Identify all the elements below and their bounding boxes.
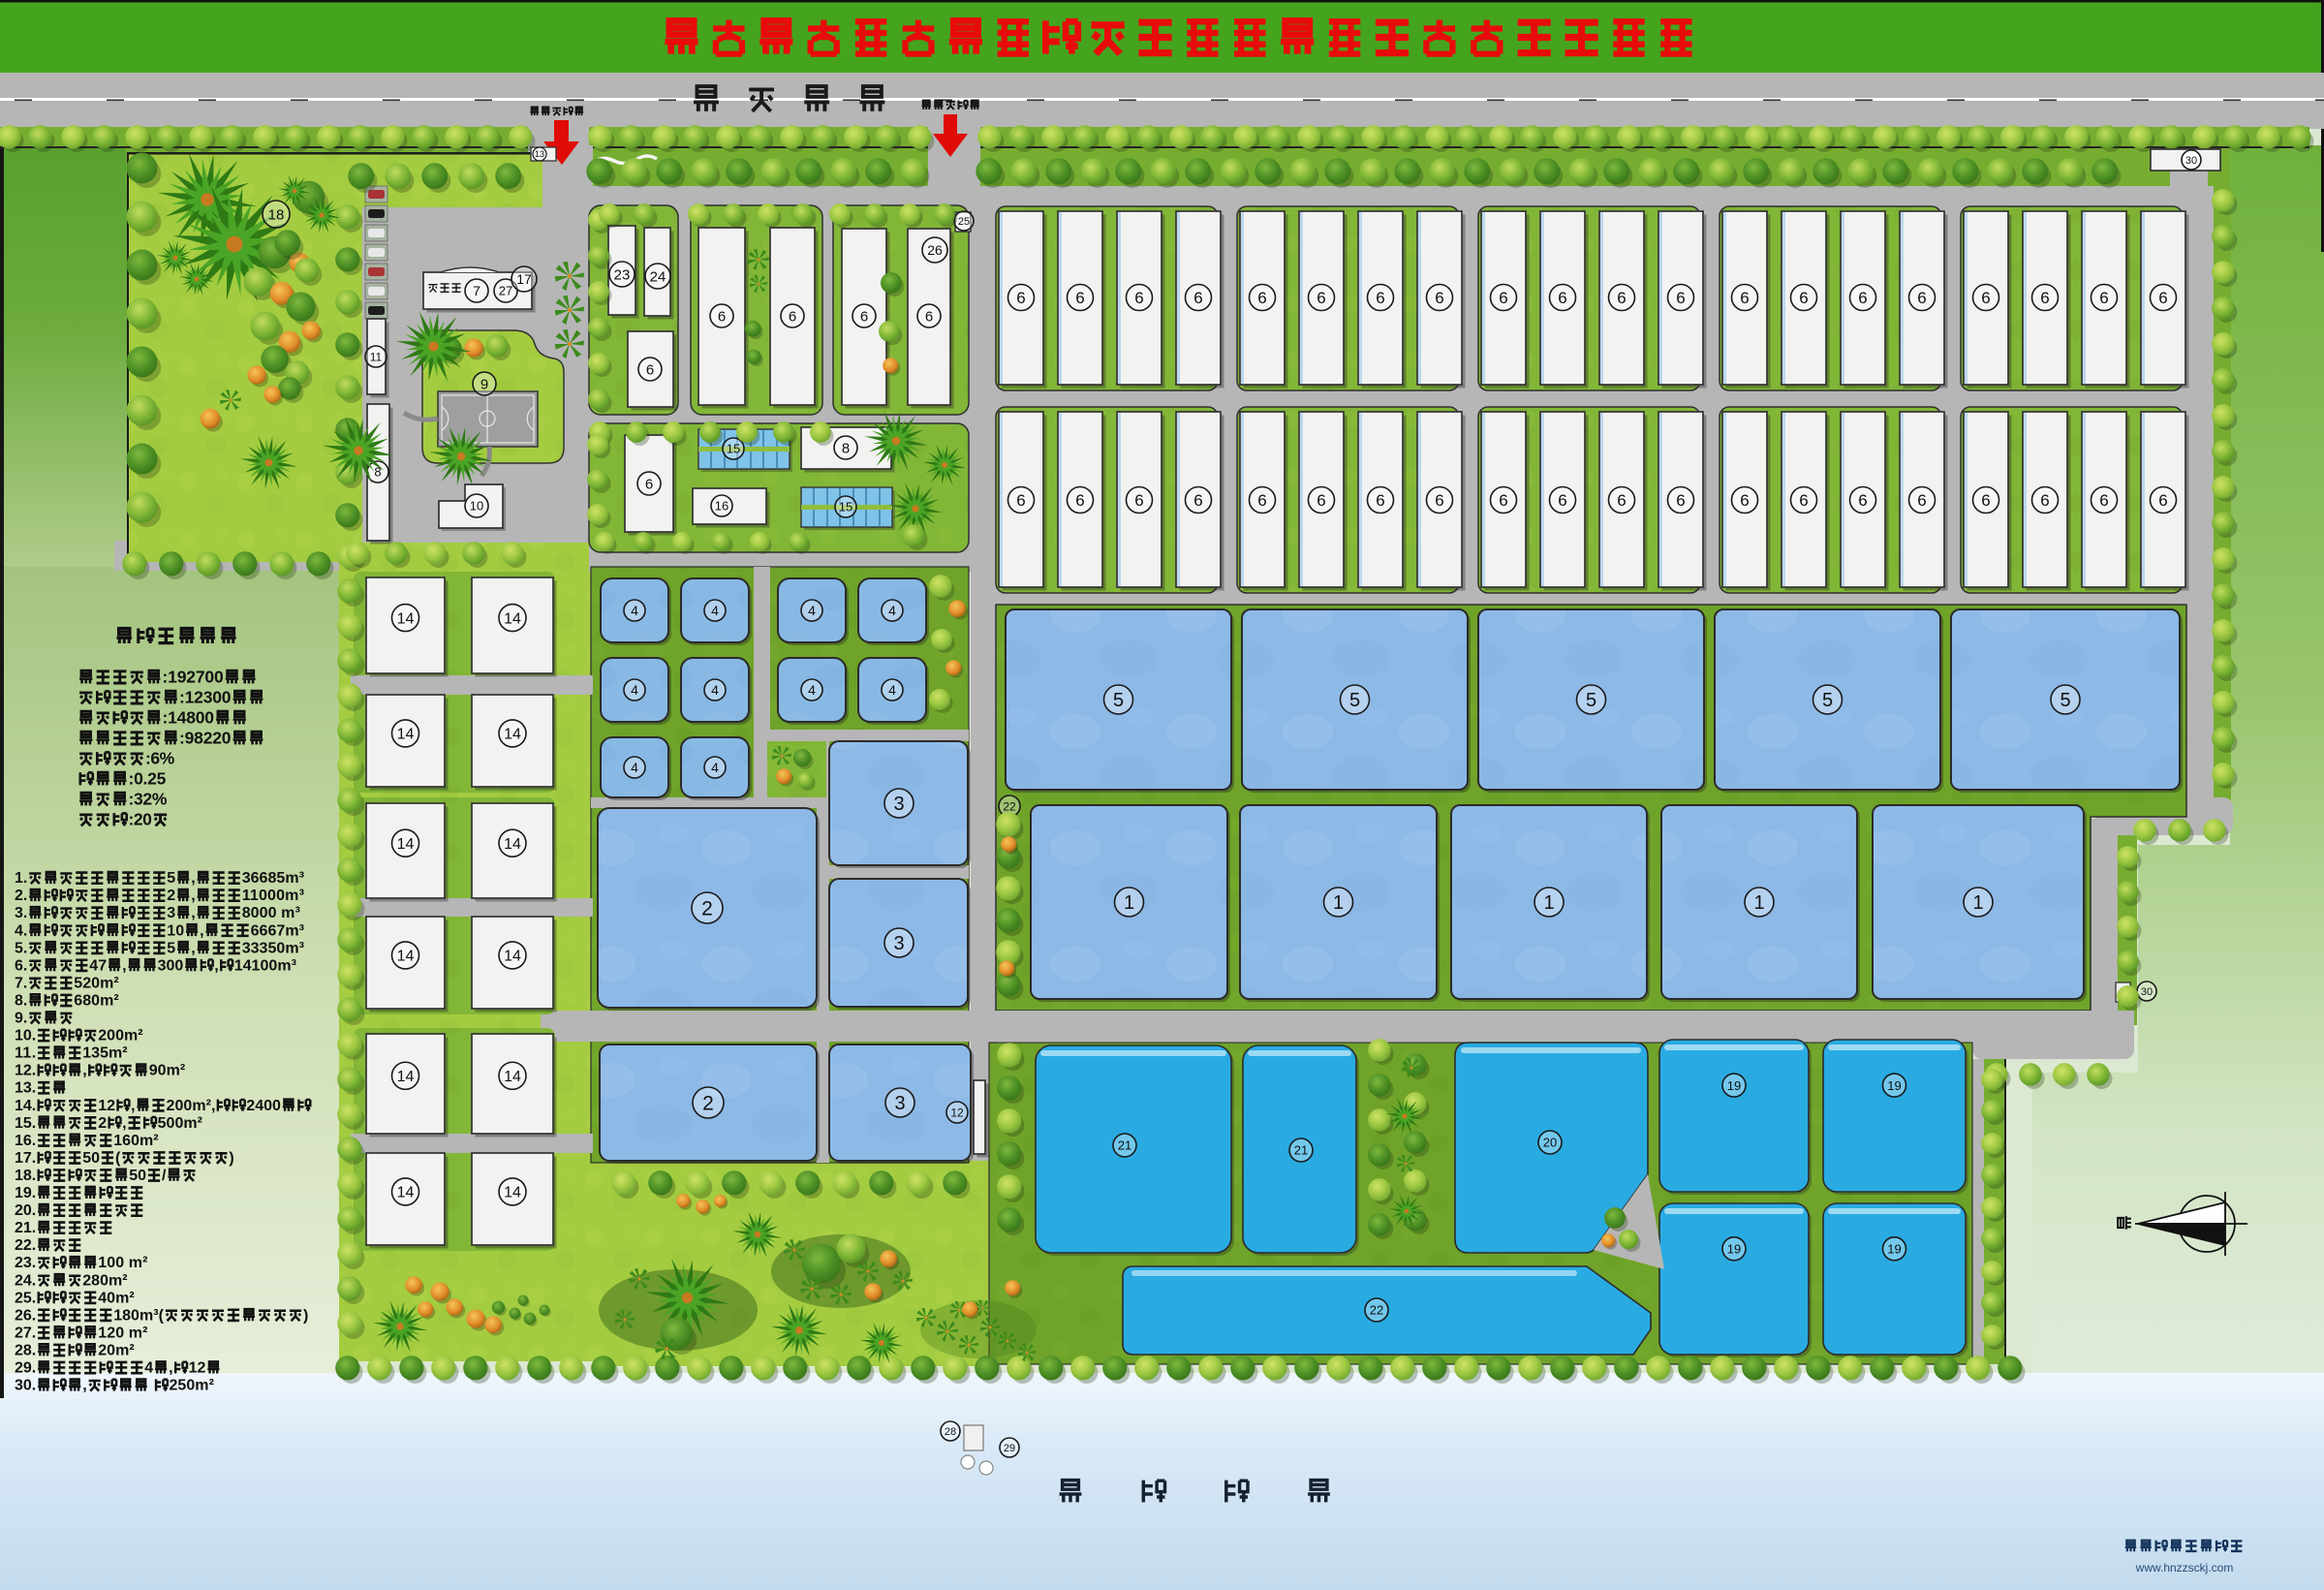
- svg-text:2: 2: [167, 888, 175, 904]
- svg-text:14: 14: [397, 836, 415, 853]
- svg-text:6: 6: [2158, 491, 2167, 510]
- svg-text:10.: 10.: [15, 1028, 36, 1044]
- svg-text:5: 5: [1822, 690, 1833, 711]
- svg-text:6: 6: [1799, 289, 1808, 307]
- svg-text::0.25: :0.25: [129, 768, 167, 788]
- svg-text:4: 4: [144, 1360, 153, 1377]
- svg-text:1.: 1.: [15, 870, 27, 887]
- svg-text:6: 6: [1193, 491, 1202, 510]
- svg-text:): ): [303, 1307, 308, 1324]
- svg-text::12300: :12300: [179, 687, 232, 706]
- svg-text:20m²: 20m²: [98, 1343, 135, 1359]
- svg-text:4: 4: [808, 603, 816, 618]
- svg-text::6%: :6%: [145, 748, 175, 767]
- svg-text:25.: 25.: [15, 1290, 36, 1306]
- svg-text:22: 22: [1003, 799, 1016, 813]
- svg-text:1: 1: [1124, 892, 1134, 914]
- svg-text:5: 5: [1349, 690, 1360, 711]
- svg-text:680m²: 680m²: [74, 993, 118, 1010]
- svg-text:6: 6: [2040, 289, 2049, 307]
- svg-text:180m³(: 180m³(: [113, 1307, 164, 1324]
- svg-text:6: 6: [1193, 289, 1202, 307]
- svg-text:4: 4: [888, 603, 896, 618]
- svg-text:23: 23: [614, 266, 631, 283]
- svg-text:19: 19: [1887, 1078, 1901, 1093]
- svg-text:11.: 11.: [15, 1045, 36, 1062]
- svg-text:16: 16: [715, 499, 728, 514]
- svg-text:19: 19: [1727, 1241, 1741, 1256]
- svg-text:6: 6: [1858, 491, 1867, 510]
- svg-text:3: 3: [167, 905, 175, 921]
- svg-text:4: 4: [631, 603, 638, 618]
- svg-text:3: 3: [893, 933, 904, 954]
- svg-text:22.: 22.: [15, 1237, 36, 1254]
- svg-text:6: 6: [1499, 289, 1507, 307]
- svg-text:,: ,: [122, 1115, 126, 1132]
- svg-text:27.: 27.: [15, 1325, 36, 1341]
- svg-text:4: 4: [631, 760, 638, 775]
- svg-text:14100m³: 14100m³: [234, 957, 296, 974]
- svg-text:26.: 26.: [15, 1307, 36, 1324]
- svg-text:26: 26: [927, 242, 943, 258]
- svg-text:14: 14: [504, 949, 521, 965]
- svg-text:23.: 23.: [15, 1255, 36, 1271]
- svg-text:200m²: 200m²: [98, 1028, 142, 1044]
- svg-text:6: 6: [1075, 491, 1084, 510]
- svg-text:21: 21: [1118, 1138, 1131, 1153]
- svg-text:27: 27: [499, 284, 512, 298]
- svg-text:2400: 2400: [246, 1098, 281, 1114]
- svg-text:6: 6: [1799, 491, 1808, 510]
- svg-text:520m²: 520m²: [74, 975, 118, 991]
- svg-text:4: 4: [711, 603, 719, 618]
- svg-text:3.: 3.: [15, 905, 27, 921]
- svg-text:14: 14: [504, 727, 521, 743]
- svg-text:10: 10: [167, 922, 184, 939]
- svg-text:6: 6: [1257, 491, 1266, 510]
- svg-text:4: 4: [711, 760, 719, 775]
- svg-text:90m²: 90m²: [149, 1063, 186, 1079]
- svg-text:4: 4: [711, 682, 719, 698]
- svg-text::32%: :32%: [129, 789, 168, 808]
- svg-text:13: 13: [535, 149, 544, 159]
- svg-text:6: 6: [1499, 491, 1507, 510]
- svg-text:14.: 14.: [15, 1098, 36, 1114]
- svg-text:33350m³: 33350m³: [242, 940, 304, 956]
- svg-text:6: 6: [1981, 491, 1990, 510]
- svg-text:15.: 15.: [15, 1115, 36, 1132]
- svg-text:6: 6: [2040, 491, 2049, 510]
- svg-text:6: 6: [1317, 289, 1325, 307]
- svg-text:6: 6: [1981, 289, 1990, 307]
- svg-text:www.hnzzsckj.com: www.hnzzsckj.com: [2135, 1561, 2234, 1574]
- svg-text:18: 18: [268, 206, 285, 223]
- svg-text:,: ,: [131, 1098, 135, 1114]
- svg-text:1: 1: [1543, 892, 1554, 914]
- svg-text:50: 50: [82, 1150, 100, 1167]
- svg-text:1: 1: [1972, 892, 1983, 914]
- svg-text:2: 2: [702, 1093, 714, 1115]
- svg-text:6: 6: [789, 308, 796, 325]
- svg-text:11: 11: [370, 350, 383, 363]
- svg-text:6: 6: [1257, 289, 1266, 307]
- svg-text::20: :20: [129, 809, 153, 828]
- svg-text:6: 6: [1376, 491, 1384, 510]
- svg-text:4.: 4.: [15, 922, 27, 939]
- svg-text:40m²: 40m²: [98, 1290, 135, 1306]
- svg-text:21: 21: [1294, 1143, 1308, 1158]
- svg-text:,: ,: [214, 957, 218, 974]
- svg-text:19: 19: [1887, 1241, 1901, 1256]
- svg-text:6: 6: [1917, 491, 1926, 510]
- svg-text:,: ,: [191, 940, 195, 956]
- svg-text:6: 6: [646, 361, 654, 378]
- svg-text:135m²: 135m²: [82, 1045, 127, 1062]
- svg-text:6667m³: 6667m³: [251, 922, 304, 939]
- svg-text:4: 4: [888, 682, 896, 698]
- svg-text:7: 7: [473, 283, 480, 298]
- svg-text:6: 6: [1617, 289, 1626, 307]
- svg-text:11000m³: 11000m³: [242, 888, 304, 904]
- svg-text:24.: 24.: [15, 1272, 36, 1289]
- svg-text:6: 6: [1676, 289, 1685, 307]
- svg-text:30: 30: [2141, 986, 2153, 998]
- svg-text::14800: :14800: [163, 707, 215, 727]
- svg-text:/: /: [162, 1168, 167, 1184]
- svg-text:30.: 30.: [15, 1378, 36, 1394]
- svg-text:9: 9: [480, 376, 488, 392]
- svg-text:6: 6: [1376, 289, 1384, 307]
- svg-text:6: 6: [1435, 289, 1443, 307]
- svg-text:5: 5: [167, 940, 175, 956]
- svg-text:5: 5: [2060, 690, 2070, 711]
- svg-text:5: 5: [167, 870, 175, 887]
- svg-text::192700: :192700: [163, 667, 224, 686]
- svg-text:,: ,: [122, 957, 126, 974]
- svg-text:20: 20: [1543, 1136, 1557, 1150]
- svg-text:6: 6: [645, 476, 653, 492]
- svg-text:6: 6: [1858, 289, 1867, 307]
- svg-text::98220: :98220: [179, 728, 232, 747]
- svg-text:12.: 12.: [15, 1063, 36, 1079]
- svg-text:6: 6: [1558, 289, 1566, 307]
- svg-text:4: 4: [631, 682, 638, 698]
- svg-text:100 m²: 100 m²: [98, 1255, 147, 1271]
- svg-text:6: 6: [860, 308, 868, 325]
- svg-text:6: 6: [925, 308, 933, 325]
- svg-text:,: ,: [191, 888, 195, 904]
- svg-text:,: ,: [82, 1378, 86, 1394]
- svg-text:,: ,: [200, 922, 203, 939]
- svg-text:3: 3: [894, 1093, 905, 1114]
- svg-text:6: 6: [2099, 491, 2108, 510]
- svg-text:300: 300: [158, 957, 184, 974]
- svg-text:14: 14: [504, 1185, 521, 1201]
- svg-text:18.: 18.: [15, 1168, 36, 1184]
- svg-text:19.: 19.: [15, 1185, 36, 1201]
- svg-text:9.: 9.: [15, 1011, 27, 1027]
- svg-text:8000 m³: 8000 m³: [242, 905, 300, 921]
- svg-text:,: ,: [191, 870, 195, 887]
- svg-text:6: 6: [1740, 289, 1749, 307]
- svg-text:6: 6: [1558, 491, 1566, 510]
- svg-text:28: 28: [945, 1426, 956, 1438]
- svg-text:15: 15: [839, 500, 852, 514]
- svg-text:6.: 6.: [15, 957, 27, 974]
- svg-text:160m²: 160m²: [113, 1133, 158, 1149]
- svg-text:17: 17: [516, 271, 532, 287]
- svg-text:2: 2: [98, 1115, 107, 1132]
- svg-text:14: 14: [504, 1069, 521, 1085]
- svg-text:6: 6: [1676, 491, 1685, 510]
- svg-text:6: 6: [2158, 289, 2167, 307]
- svg-text:280m²: 280m²: [82, 1272, 127, 1289]
- svg-text:10: 10: [470, 499, 483, 514]
- svg-text:2.: 2.: [15, 888, 27, 904]
- svg-text:29.: 29.: [15, 1360, 36, 1377]
- svg-text:2: 2: [701, 898, 713, 920]
- svg-text:6: 6: [1016, 491, 1025, 510]
- svg-text:14: 14: [397, 949, 415, 965]
- svg-text:6: 6: [1134, 289, 1143, 307]
- svg-text:4: 4: [808, 682, 816, 698]
- svg-text:5: 5: [1586, 690, 1596, 711]
- svg-text:,: ,: [169, 1360, 172, 1377]
- svg-text:8.: 8.: [15, 993, 27, 1010]
- svg-text:12: 12: [189, 1360, 206, 1377]
- svg-text:30: 30: [2185, 155, 2197, 167]
- svg-text:14: 14: [397, 610, 415, 627]
- svg-text:6: 6: [1917, 289, 1926, 307]
- svg-text:14: 14: [397, 727, 415, 743]
- svg-text:6: 6: [1617, 491, 1626, 510]
- svg-text:6: 6: [2099, 289, 2108, 307]
- svg-text:15: 15: [727, 442, 740, 456]
- svg-text:8: 8: [842, 440, 850, 456]
- svg-text:50: 50: [129, 1168, 146, 1184]
- svg-text:29: 29: [1004, 1443, 1015, 1454]
- svg-text:19: 19: [1727, 1078, 1741, 1093]
- svg-text:6: 6: [1016, 289, 1025, 307]
- svg-text:12: 12: [950, 1106, 964, 1119]
- svg-text:22: 22: [1370, 1303, 1383, 1318]
- svg-text:(: (: [115, 1150, 121, 1167]
- svg-text:14: 14: [504, 610, 521, 627]
- svg-text:,: ,: [191, 905, 195, 921]
- svg-text:6: 6: [1075, 289, 1084, 307]
- svg-text:36685m³: 36685m³: [242, 870, 304, 887]
- svg-text:3: 3: [893, 794, 904, 815]
- svg-text:5.: 5.: [15, 940, 27, 956]
- svg-text:47: 47: [89, 957, 107, 974]
- svg-text:6: 6: [1134, 491, 1143, 510]
- svg-text:5: 5: [1113, 690, 1124, 711]
- svg-text:6: 6: [1317, 491, 1325, 510]
- svg-text:7.: 7.: [15, 975, 27, 991]
- svg-text:20.: 20.: [15, 1202, 36, 1219]
- svg-text:250m²: 250m²: [170, 1378, 214, 1394]
- svg-text:1: 1: [1333, 892, 1344, 914]
- svg-text:17.: 17.: [15, 1150, 36, 1167]
- svg-text:6: 6: [718, 308, 726, 325]
- svg-text:500m²: 500m²: [158, 1115, 202, 1132]
- svg-text:,: ,: [82, 1063, 86, 1079]
- svg-text:14: 14: [397, 1185, 415, 1201]
- svg-text:6: 6: [1740, 491, 1749, 510]
- svg-text:1: 1: [1753, 892, 1764, 914]
- svg-text:14: 14: [504, 836, 521, 853]
- svg-text:): ): [229, 1150, 233, 1167]
- svg-text:13.: 13.: [15, 1080, 36, 1097]
- svg-text:200m²,: 200m²,: [167, 1098, 216, 1114]
- svg-text:28.: 28.: [15, 1343, 36, 1359]
- svg-text:12: 12: [98, 1098, 115, 1114]
- svg-text:120 m²: 120 m²: [98, 1325, 147, 1341]
- svg-text:24: 24: [650, 268, 666, 285]
- svg-text:21.: 21.: [15, 1220, 36, 1236]
- svg-text:25: 25: [958, 216, 970, 228]
- svg-text:16.: 16.: [15, 1133, 36, 1149]
- svg-text:14: 14: [397, 1069, 415, 1085]
- svg-text:6: 6: [1435, 491, 1443, 510]
